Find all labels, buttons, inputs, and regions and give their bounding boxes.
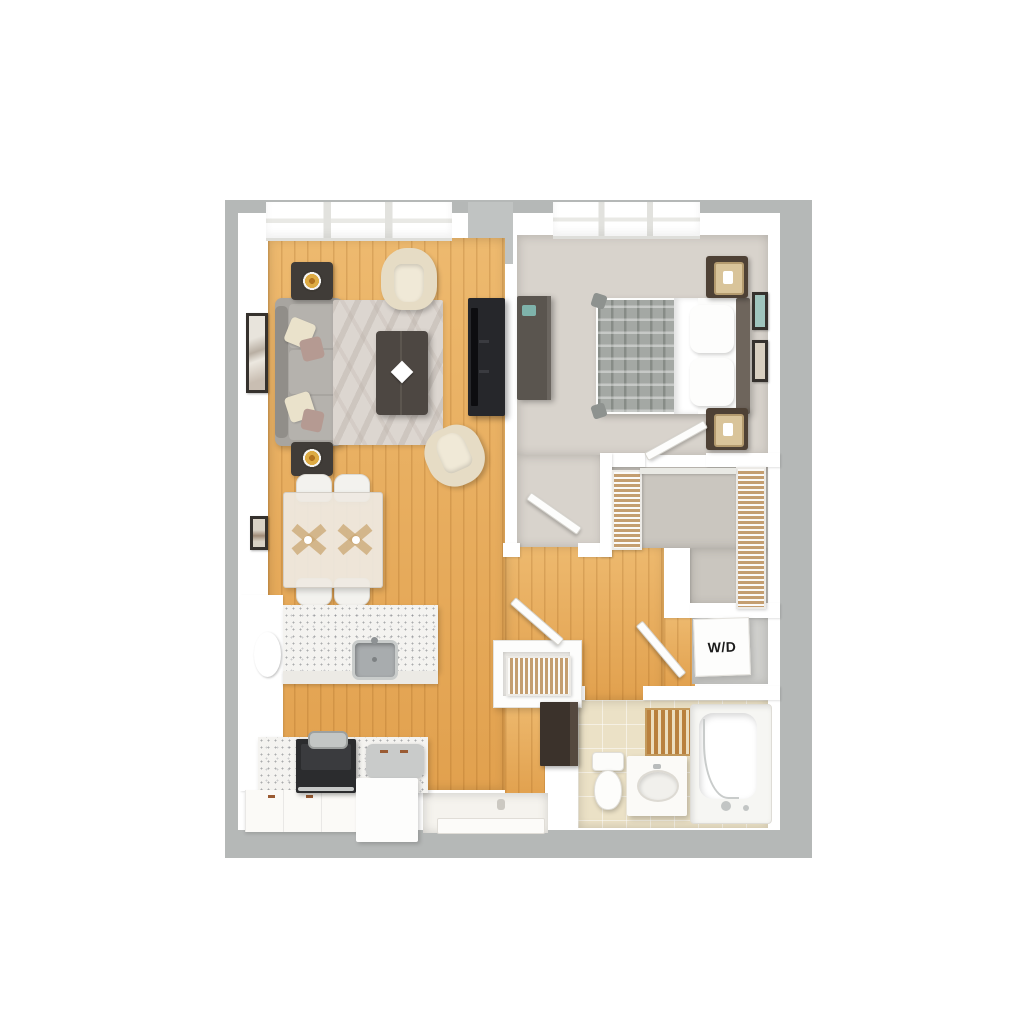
outer-wall-right: [780, 200, 812, 858]
vanity-faucet: [653, 764, 661, 769]
wall-art-small: [250, 516, 268, 550]
linen-closet: [493, 640, 582, 708]
tv-screen: [471, 308, 478, 406]
entry-door: [437, 818, 545, 834]
bedroom-window: [553, 202, 700, 239]
kitchen-cabinet-front: [245, 790, 363, 832]
entry-wood-floor: [505, 700, 545, 797]
lamp-bulb: [723, 423, 733, 436]
outer-wall-bottom: [225, 830, 812, 858]
bed-pillow: [690, 305, 734, 353]
dresser-decor: [522, 305, 536, 316]
living-room-window: [266, 202, 452, 241]
headboard: [736, 298, 750, 414]
refrigerator-body: [356, 778, 418, 842]
nightstand-lamp: [714, 414, 744, 447]
closet-shelf-right: [736, 467, 766, 609]
linen-shelf: [506, 656, 571, 696]
toilet-tank: [592, 752, 624, 771]
dining-table: [283, 492, 383, 588]
table-lamp: [301, 447, 323, 469]
tub-faucet: [721, 801, 731, 811]
table-dot: [352, 536, 360, 544]
armchair-seat: [394, 264, 424, 302]
lamp-bulb: [723, 271, 733, 284]
closet-rod: [640, 468, 736, 474]
bedroom-dresser: [517, 296, 551, 400]
sink-drain: [372, 657, 377, 662]
bedroom-wall-art: [752, 340, 768, 382]
bathroom-wall-top-b: [643, 686, 780, 700]
roasting-pan: [308, 731, 348, 749]
closet-wall-top-b: [706, 453, 780, 467]
nightstand-bottom: [706, 408, 748, 450]
nightstand-lamp: [714, 262, 744, 295]
closet-wall-left: [600, 453, 612, 557]
cabinet-top-edge: [570, 702, 578, 766]
bed-blanket: [598, 300, 674, 412]
range-handle: [298, 787, 354, 791]
refrigerator-top: [366, 744, 424, 778]
wall-oval-vent: [254, 632, 281, 677]
island-sink: [352, 640, 398, 680]
entry-keyhole-mark: [497, 799, 505, 810]
fridge-handle: [380, 750, 388, 753]
hall-closet-wall: [664, 548, 690, 618]
bed: [596, 298, 750, 414]
toilet-bowl: [594, 770, 622, 810]
range-stove: [296, 739, 356, 793]
cabinet-handle: [268, 795, 275, 798]
cabinet-handle: [306, 795, 313, 798]
sofa-back: [275, 306, 288, 438]
closet-shelf-left: [612, 470, 642, 550]
floor-plan: W/D: [0, 0, 1024, 1024]
bedroom-wall-art: [752, 292, 768, 330]
outer-wall-left: [225, 200, 238, 630]
tv-console: [468, 298, 505, 416]
fridge-handle: [400, 750, 408, 753]
bed-pillow: [690, 358, 734, 406]
table-lamp: [301, 270, 323, 292]
sink-faucet: [371, 637, 378, 644]
tv-stand-mark: [479, 370, 489, 373]
tub-handle: [743, 805, 749, 811]
towel-slat-mat: [645, 708, 694, 756]
nightstand-top: [706, 256, 748, 298]
bathroom-cabinet: [540, 702, 578, 766]
washer-dryer-label: W/D: [694, 618, 750, 676]
table-dot: [304, 536, 312, 544]
bedroom-wall-bottom-left-a: [503, 543, 520, 557]
closet-wall-bottom: [690, 603, 780, 618]
bathroom-vanity: [627, 756, 687, 816]
vanity-sink: [637, 770, 679, 802]
throw-pillow: [300, 408, 325, 433]
armchair-seat: [432, 429, 475, 476]
wall-art-large: [246, 313, 268, 393]
washer-dryer-unit: W/D: [693, 617, 751, 677]
tv-stand-mark: [479, 340, 489, 343]
bathtub: [690, 704, 772, 824]
coffee-table: [376, 331, 428, 415]
coffee-table-decor: [391, 361, 414, 384]
armchair-top: [381, 248, 437, 310]
dresser-edge: [547, 296, 551, 400]
